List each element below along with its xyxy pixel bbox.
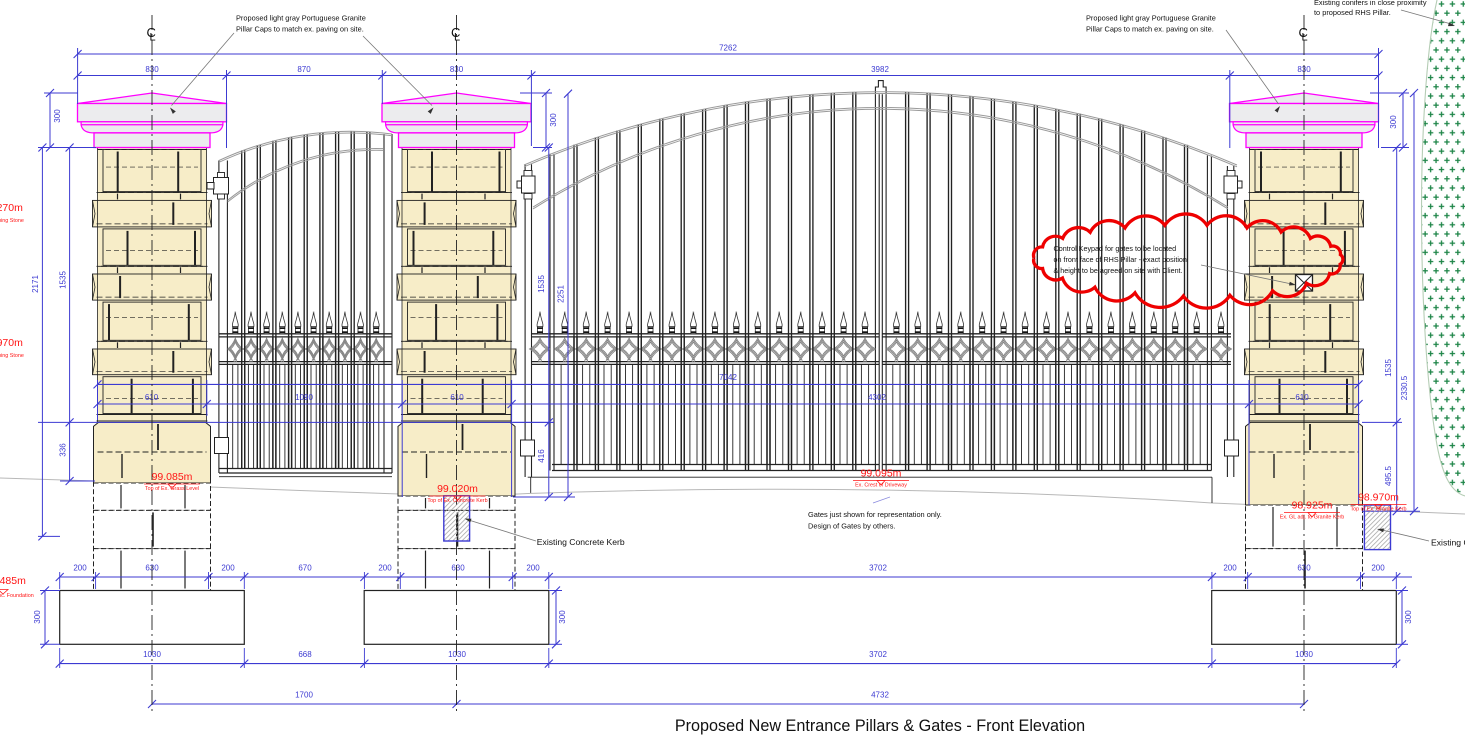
svg-text:1535: 1535 bbox=[1384, 359, 1393, 377]
svg-text:300: 300 bbox=[1404, 610, 1413, 624]
svg-text:200: 200 bbox=[1223, 564, 1237, 573]
svg-text:98.970m: 98.970m bbox=[0, 337, 23, 349]
svg-text:Ex. Crest of Driveway: Ex. Crest of Driveway bbox=[855, 483, 907, 489]
svg-text:1535: 1535 bbox=[59, 271, 68, 289]
svg-text:Existing conifers in close pro: Existing conifers in close proximity bbox=[1314, 0, 1427, 7]
svg-text:7262: 7262 bbox=[719, 44, 737, 53]
svg-text:98.485m: 98.485m bbox=[0, 575, 26, 587]
svg-text:L: L bbox=[1302, 32, 1308, 44]
svg-text:L: L bbox=[150, 32, 156, 44]
svg-text:2330.5: 2330.5 bbox=[1400, 375, 1409, 400]
svg-text:98.925m: 98.925m bbox=[1292, 500, 1333, 512]
svg-text:336: 336 bbox=[59, 443, 68, 457]
svg-text:200: 200 bbox=[378, 564, 392, 573]
svg-text:670: 670 bbox=[298, 564, 312, 573]
svg-text:Top of Capping Stone: Top of Capping Stone bbox=[0, 218, 24, 224]
svg-text:200: 200 bbox=[221, 564, 235, 573]
svg-text:Proposed light gray Portuguese: Proposed light gray Portuguese Granite bbox=[236, 14, 366, 23]
svg-text:Pillar Caps to match ex. pavin: Pillar Caps to match ex. paving on site. bbox=[1086, 25, 1214, 34]
svg-text:300: 300 bbox=[33, 610, 42, 624]
svg-text:L: L bbox=[454, 32, 460, 44]
svg-text:Top of Ex. Grass Level: Top of Ex. Grass Level bbox=[145, 486, 199, 492]
svg-text:4302: 4302 bbox=[868, 393, 886, 402]
svg-text:1535: 1535 bbox=[537, 275, 546, 293]
svg-text:Top of Ex. Concrete Kerb: Top of Ex. Concrete Kerb bbox=[427, 498, 487, 504]
svg-text:7042: 7042 bbox=[719, 373, 737, 382]
svg-text:Pillar Caps to match ex. pavin: Pillar Caps to match ex. paving on site. bbox=[236, 25, 364, 34]
svg-text:1030: 1030 bbox=[448, 650, 466, 659]
svg-text:200: 200 bbox=[526, 564, 540, 573]
svg-text:416: 416 bbox=[537, 449, 546, 463]
svg-text:3702: 3702 bbox=[869, 650, 887, 659]
svg-text:4732: 4732 bbox=[871, 691, 889, 700]
svg-text:630: 630 bbox=[451, 564, 465, 573]
svg-text:495.5: 495.5 bbox=[1384, 465, 1393, 486]
svg-text:200: 200 bbox=[1371, 564, 1385, 573]
svg-text:Existing Concrete Kerb: Existing Concrete Kerb bbox=[537, 537, 625, 547]
svg-text:98.970m: 98.970m bbox=[1358, 492, 1399, 504]
svg-text:2171: 2171 bbox=[31, 275, 40, 293]
svg-text:300: 300 bbox=[558, 610, 567, 624]
svg-text:Top of Ex. Granite Kerb: Top of Ex. Granite Kerb bbox=[1350, 507, 1406, 513]
svg-text:Design of Gates by others.: Design of Gates by others. bbox=[808, 522, 896, 531]
svg-text:300: 300 bbox=[549, 113, 558, 127]
svg-text:99.020m: 99.020m bbox=[437, 483, 478, 495]
svg-text:Gates just shown for represent: Gates just shown for representation only… bbox=[808, 510, 942, 519]
svg-text:1090: 1090 bbox=[295, 393, 313, 402]
svg-text:610: 610 bbox=[1295, 393, 1309, 402]
svg-text:Control Keypad for gates to be: Control Keypad for gates to be located bbox=[1054, 244, 1177, 253]
svg-text:200: 200 bbox=[73, 564, 87, 573]
svg-text:668: 668 bbox=[298, 650, 312, 659]
svg-text:Ex. GL adj. to Granite Kerb: Ex. GL adj. to Granite Kerb bbox=[1280, 515, 1345, 521]
svg-text:2251: 2251 bbox=[557, 285, 566, 303]
svg-text:Top of Capping Stone: Top of Capping Stone bbox=[0, 353, 24, 359]
svg-text:99.270m: 99.270m bbox=[0, 202, 23, 214]
svg-text:to proposed RHS Pillar.: to proposed RHS Pillar. bbox=[1314, 8, 1391, 17]
svg-text:Top of Conc. Foundation: Top of Conc. Foundation bbox=[0, 593, 34, 599]
svg-text:610: 610 bbox=[450, 393, 464, 402]
svg-text:& height to be agreed on site: & height to be agreed on site with Clien… bbox=[1054, 266, 1183, 275]
svg-text:Proposed New Entrance Pillars: Proposed New Entrance Pillars & Gates - … bbox=[675, 717, 1085, 735]
svg-text:on front face of RHS Pillar -: on front face of RHS Pillar - exact posi… bbox=[1054, 255, 1187, 264]
svg-text:99.085m: 99.085m bbox=[152, 471, 193, 483]
svg-text:1700: 1700 bbox=[295, 691, 313, 700]
svg-text:870: 870 bbox=[297, 65, 311, 74]
svg-text:Proposed light gray Portuguese: Proposed light gray Portuguese Granite bbox=[1086, 14, 1216, 23]
svg-text:3982: 3982 bbox=[871, 65, 889, 74]
svg-text:99.095m: 99.095m bbox=[861, 468, 902, 480]
svg-text:300: 300 bbox=[1389, 115, 1398, 129]
svg-text:300: 300 bbox=[53, 109, 62, 123]
svg-text:Existing Granite Kerb: Existing Granite Kerb bbox=[1431, 538, 1465, 548]
svg-text:3702: 3702 bbox=[869, 564, 887, 573]
